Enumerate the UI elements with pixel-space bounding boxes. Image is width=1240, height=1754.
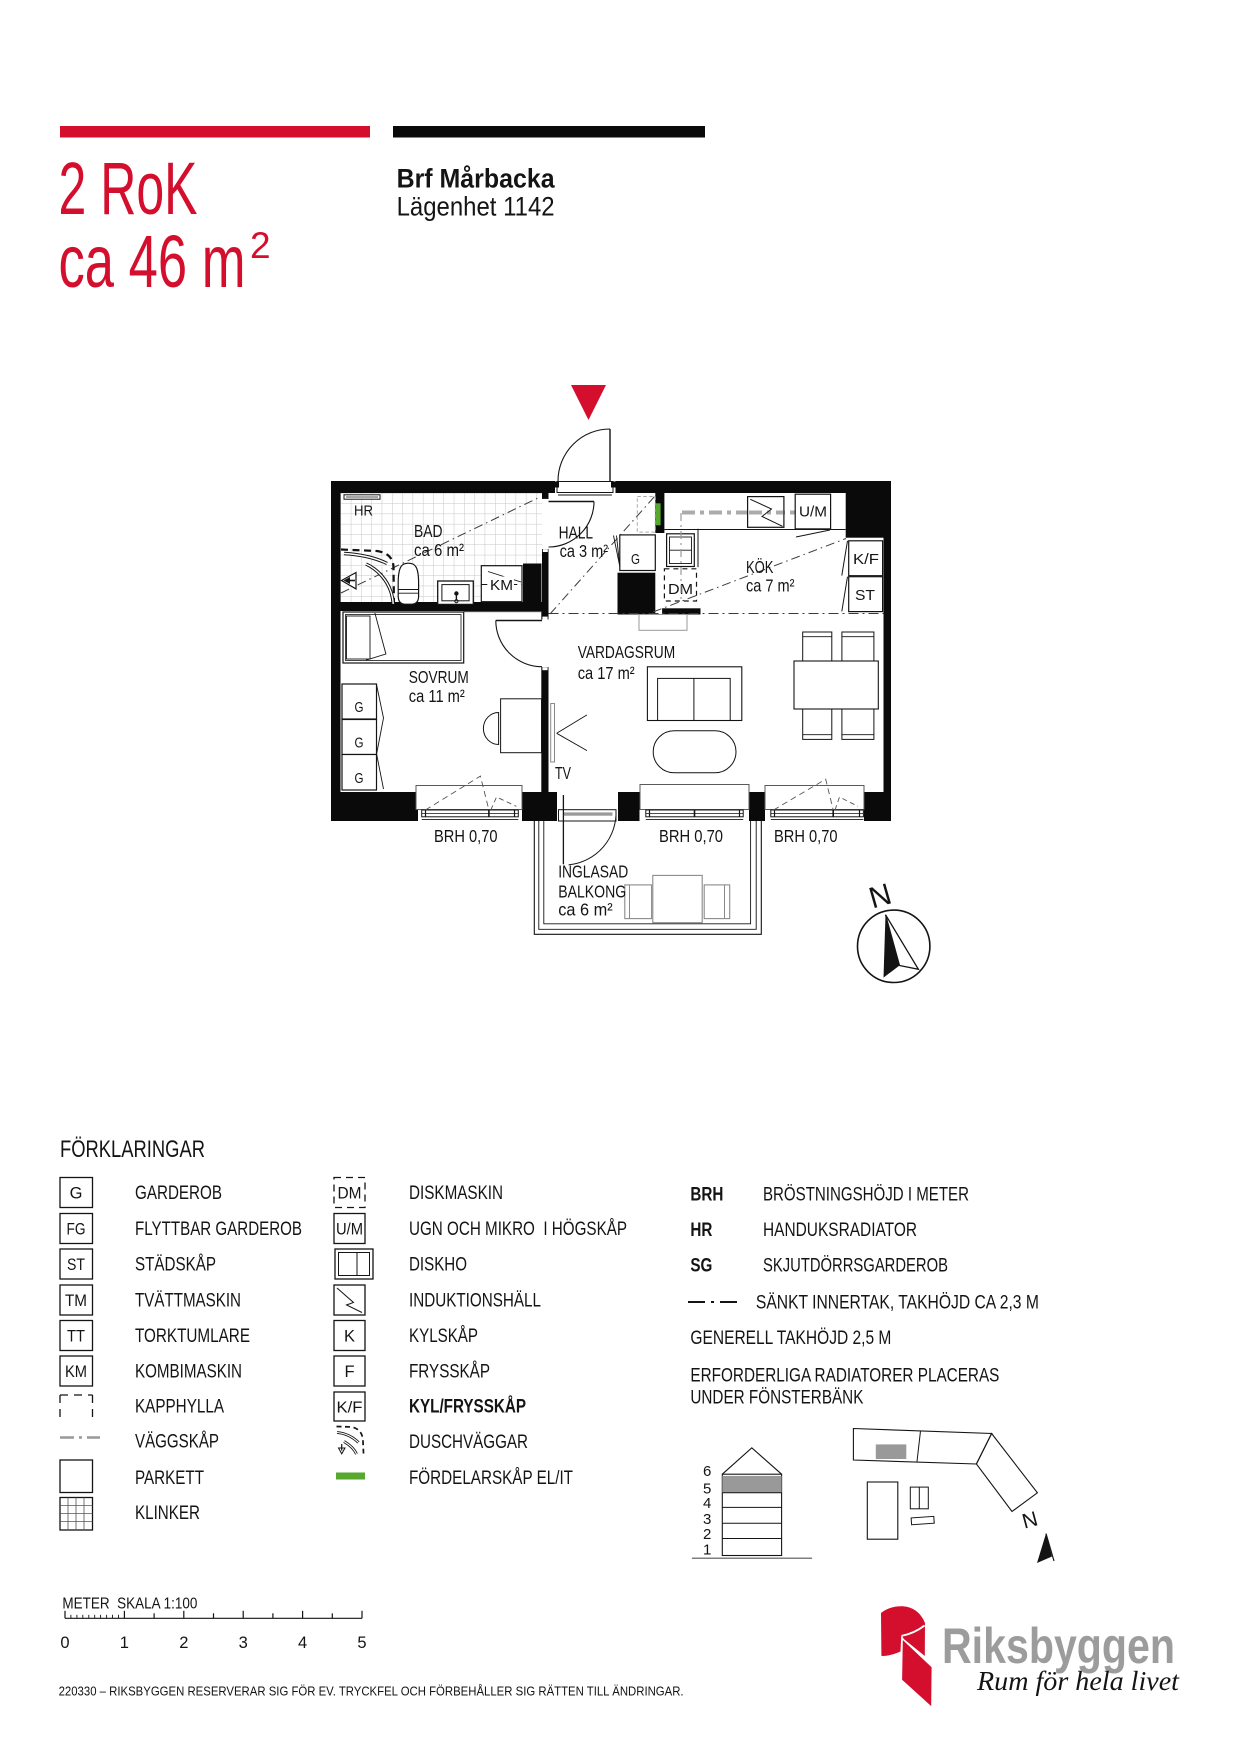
svg-text:K/F: K/F — [853, 551, 879, 568]
svg-text:2: 2 — [179, 1634, 188, 1652]
svg-text:KM: KM — [490, 577, 513, 594]
svg-text:G: G — [631, 551, 640, 568]
svg-text:TM: TM — [65, 1292, 87, 1310]
svg-text:6: 6 — [703, 1463, 711, 1480]
svg-text:HALL: HALL — [559, 523, 594, 543]
svg-text:GENERELL TAKHÖJD 2,5 M: GENERELL TAKHÖJD 2,5 M — [690, 1328, 891, 1349]
svg-text:4: 4 — [298, 1634, 307, 1652]
svg-text:5: 5 — [357, 1634, 366, 1652]
svg-text:UNDER FÖNSTERBÄNK: UNDER FÖNSTERBÄNK — [690, 1388, 863, 1409]
svg-text:2: 2 — [703, 1526, 711, 1543]
svg-text:G: G — [70, 1185, 83, 1203]
svg-text:KM: KM — [65, 1363, 87, 1381]
svg-text:STÄDSKÅP: STÄDSKÅP — [135, 1255, 216, 1276]
svg-text:INGLASAD: INGLASAD — [558, 862, 628, 882]
svg-text:FÖRDELARSKÅP EL/IT: FÖRDELARSKÅP EL/IT — [409, 1468, 573, 1489]
svg-text:FG: FG — [67, 1221, 86, 1239]
svg-text:ca 6 m²: ca 6 m² — [558, 900, 613, 920]
svg-text:SKJUTDÖRRSGARDEROB: SKJUTDÖRRSGARDEROB — [763, 1256, 948, 1277]
svg-text:GARDEROB: GARDEROB — [135, 1183, 222, 1204]
svg-text:BRH 0,70: BRH 0,70 — [434, 826, 498, 846]
svg-text:ca 17 m²: ca 17 m² — [578, 663, 635, 683]
svg-text:SG: SG — [690, 1256, 712, 1277]
svg-text:BALKONG: BALKONG — [558, 882, 626, 902]
svg-text:DISKHO: DISKHO — [409, 1255, 467, 1276]
svg-text:BRH 0,70: BRH 0,70 — [659, 826, 723, 846]
svg-text:ca 46 m: ca 46 m — [59, 220, 246, 303]
svg-text:1: 1 — [120, 1634, 129, 1652]
svg-text:220330 – RIKSBYGGEN RESERVERAR: 220330 – RIKSBYGGEN RESERVERAR SIG FÖR E… — [59, 1684, 684, 1699]
svg-text:KÖK: KÖK — [746, 557, 774, 577]
svg-text:KAPPHYLLA: KAPPHYLLA — [135, 1397, 224, 1418]
svg-text:TORKTUMLARE: TORKTUMLARE — [135, 1326, 250, 1347]
svg-text:SÄNKT INNERTAK, TAKHÖJD CA 2,3: SÄNKT INNERTAK, TAKHÖJD CA 2,3 M — [756, 1293, 1039, 1314]
svg-text:ST: ST — [855, 587, 875, 604]
svg-text:4: 4 — [703, 1495, 711, 1512]
svg-text:F: F — [344, 1363, 354, 1381]
svg-text:TV: TV — [555, 763, 571, 783]
svg-text:KYLSKÅP: KYLSKÅP — [409, 1326, 478, 1347]
svg-text:ca 3 m²: ca 3 m² — [560, 541, 609, 561]
svg-text:TT: TT — [67, 1328, 85, 1346]
svg-text:HR: HR — [690, 1220, 712, 1241]
svg-text:ca 7 m²: ca 7 m² — [746, 576, 795, 596]
svg-text:KLINKER: KLINKER — [135, 1503, 200, 1524]
svg-text:FRYSSKÅP: FRYSSKÅP — [409, 1362, 490, 1383]
svg-text:VÄGGSKÅP: VÄGGSKÅP — [135, 1432, 219, 1453]
svg-text:DM: DM — [338, 1185, 362, 1203]
svg-text:BRH: BRH — [690, 1185, 723, 1206]
svg-text:G: G — [355, 699, 364, 716]
svg-text:2: 2 — [250, 225, 271, 266]
svg-text:FLYTTBAR GARDEROB: FLYTTBAR GARDEROB — [135, 1219, 302, 1240]
svg-text:INDUKTIONSHÄLL: INDUKTIONSHÄLL — [409, 1291, 541, 1312]
svg-text:HR: HR — [354, 503, 373, 520]
svg-text:G: G — [355, 770, 364, 787]
svg-text:G: G — [355, 735, 364, 752]
svg-text:BRH 0,70: BRH 0,70 — [774, 826, 838, 846]
svg-text:DISKMASKIN: DISKMASKIN — [409, 1183, 503, 1204]
svg-text:TVÄTTMASKIN: TVÄTTMASKIN — [135, 1291, 241, 1312]
svg-text:ca 6 m²: ca 6 m² — [414, 540, 464, 560]
svg-text:METER SKALA 1:100: METER SKALA 1:100 — [62, 1596, 197, 1613]
svg-text:U/M: U/M — [336, 1221, 363, 1239]
svg-text:Brf Mårbacka: Brf Mårbacka — [397, 164, 556, 194]
svg-text:KYL/FRYSSKÅP: KYL/FRYSSKÅP — [409, 1397, 526, 1418]
svg-text:UGN OCH MIKRO I HÖGSKÅP: UGN OCH MIKRO I HÖGSKÅP — [409, 1219, 627, 1240]
svg-text:KOMBIMASKIN: KOMBIMASKIN — [135, 1362, 242, 1383]
svg-text:ST: ST — [67, 1256, 85, 1274]
svg-text:DUSCHVÄGGAR: DUSCHVÄGGAR — [409, 1432, 528, 1453]
svg-text:ERFORDERLIGA RADIATORER PLACER: ERFORDERLIGA RADIATORER PLACERAS — [690, 1366, 999, 1387]
svg-text:PARKETT: PARKETT — [135, 1468, 204, 1489]
svg-text:BAD: BAD — [414, 521, 443, 541]
svg-text:FÖRKLARINGAR: FÖRKLARINGAR — [60, 1136, 205, 1163]
svg-text:K: K — [344, 1328, 355, 1346]
svg-text:K/F: K/F — [337, 1400, 363, 1417]
svg-text:Lägenhet 1142: Lägenhet 1142 — [397, 192, 555, 222]
svg-text:3: 3 — [239, 1634, 248, 1652]
svg-text:0: 0 — [60, 1634, 69, 1652]
svg-text:VARDAGSRUM: VARDAGSRUM — [578, 642, 676, 662]
svg-text:2 RoK: 2 RoK — [59, 147, 198, 230]
svg-text:SOVRUM: SOVRUM — [409, 667, 469, 687]
svg-text:ca 11 m²: ca 11 m² — [409, 686, 465, 706]
svg-text:1: 1 — [703, 1542, 711, 1559]
svg-text:HANDUKSRADIATOR: HANDUKSRADIATOR — [763, 1220, 917, 1241]
svg-text:U/M: U/M — [799, 504, 827, 521]
svg-text:BRÖSTNINGSHÖJD I METER: BRÖSTNINGSHÖJD I METER — [763, 1185, 969, 1206]
svg-text:Rum för hela livet: Rum för hela livet — [976, 1666, 1181, 1696]
